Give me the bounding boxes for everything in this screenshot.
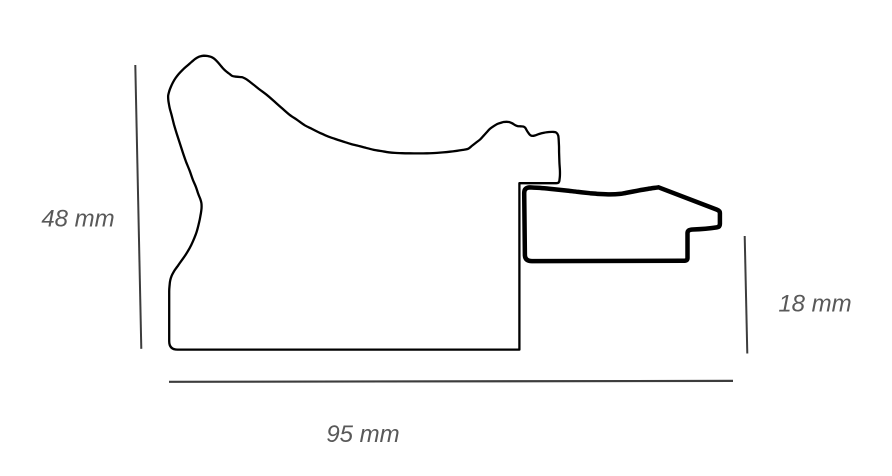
- svg-text:18 mm: 18 mm: [778, 291, 851, 318]
- svg-text:48 mm: 48 mm: [41, 206, 114, 233]
- svg-text:95 mm: 95 mm: [326, 421, 399, 448]
